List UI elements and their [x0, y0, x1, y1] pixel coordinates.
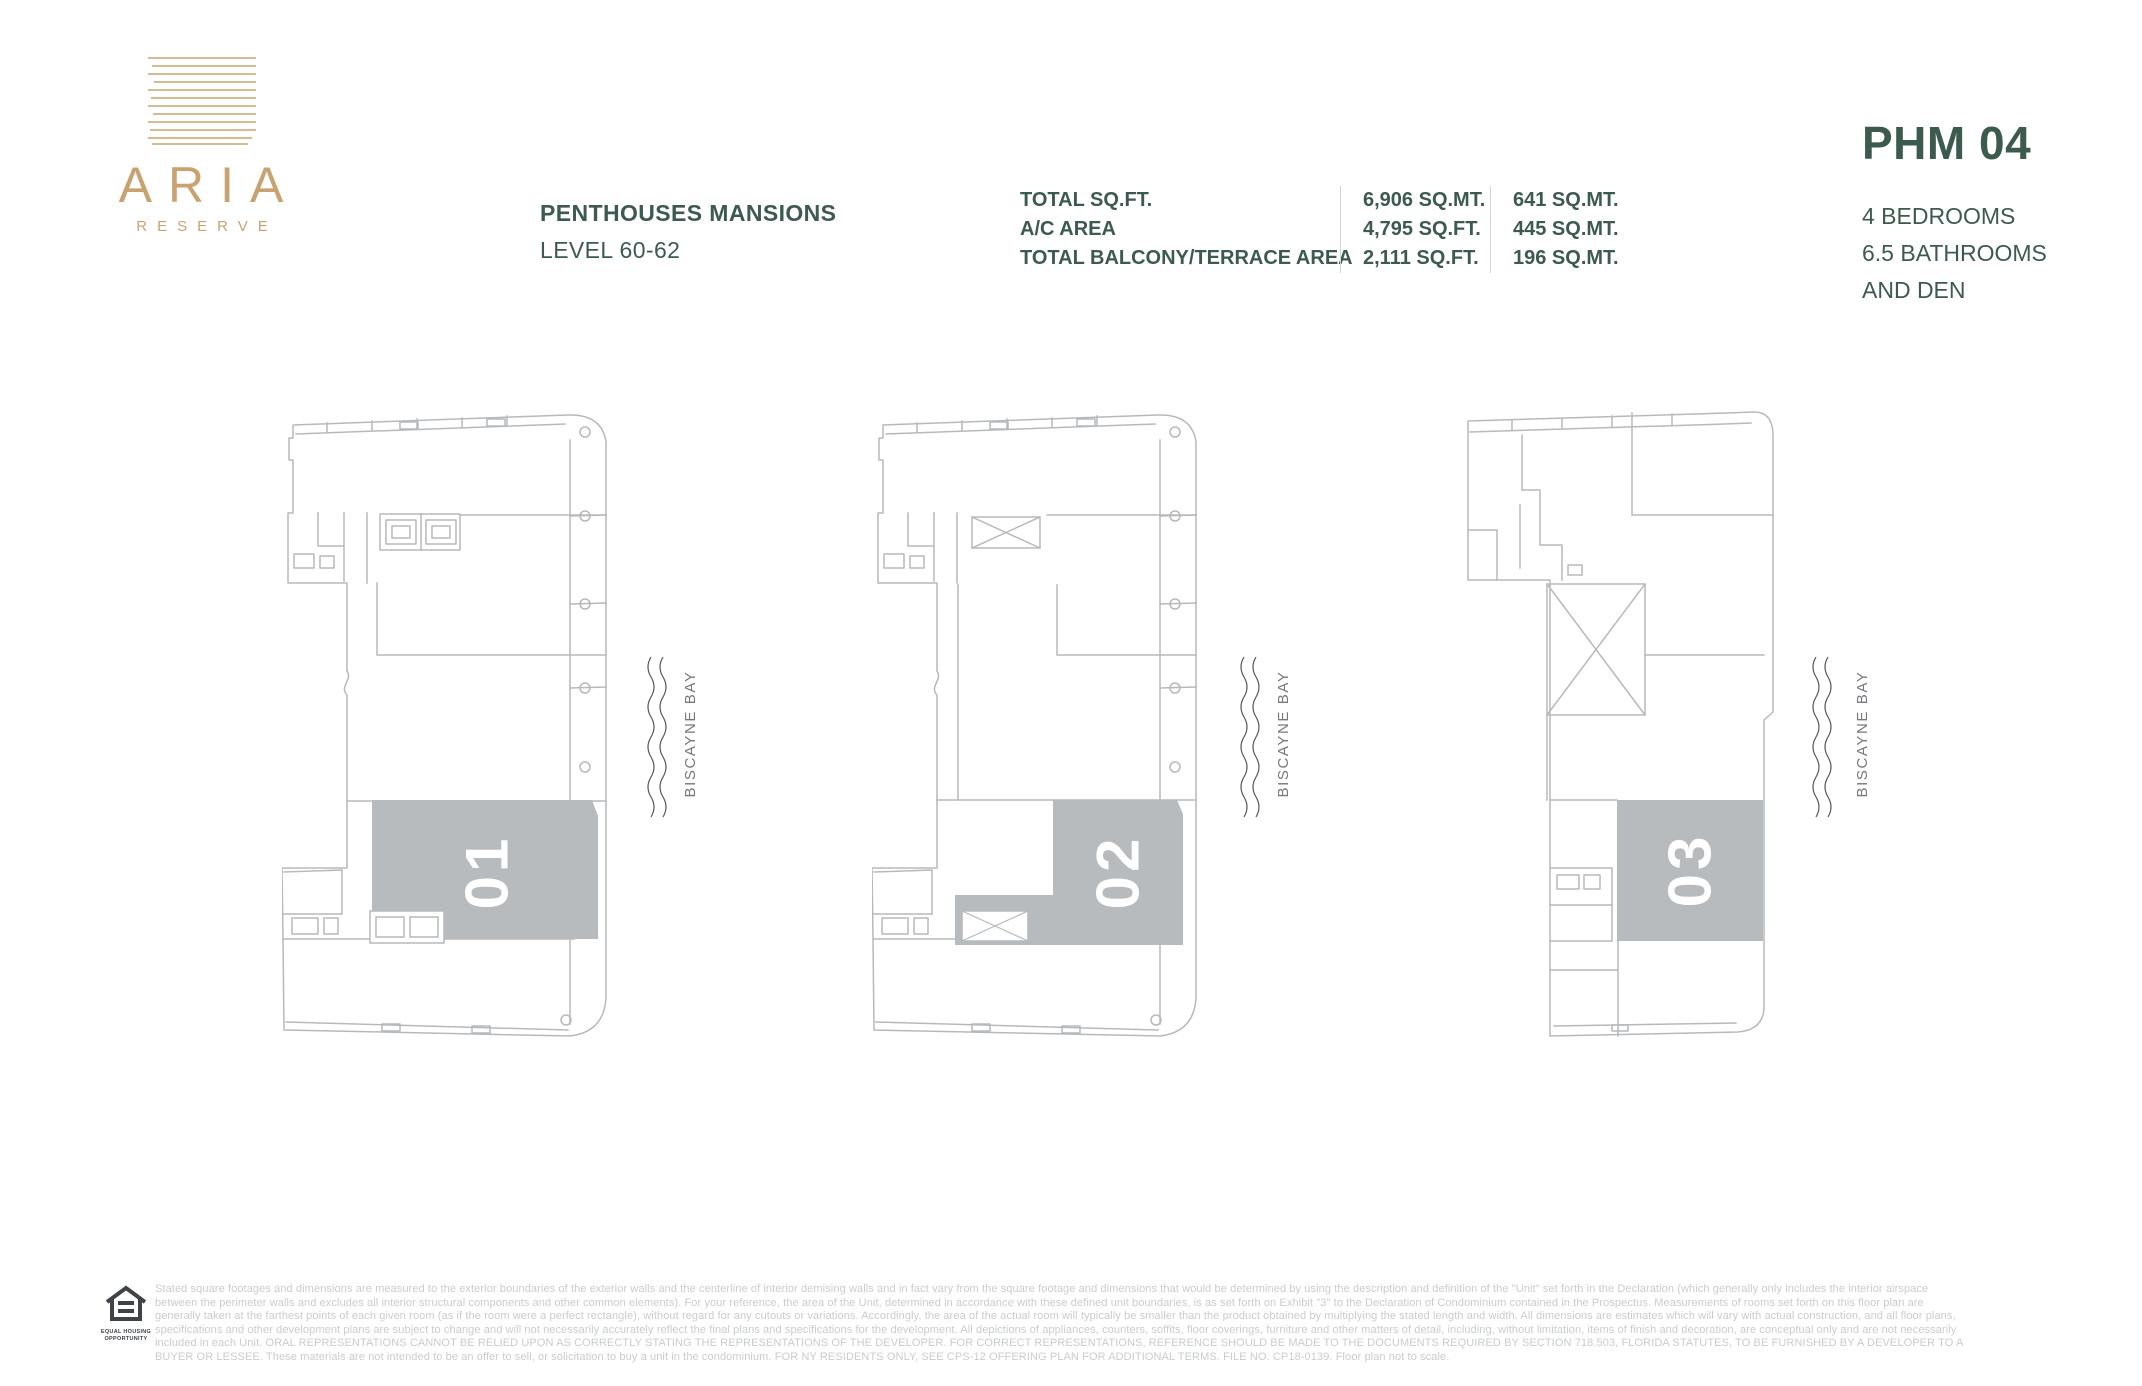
unit-info-block: PHM 04 4 BEDROOMS 6.5 BATHROOMS AND DEN [1862, 116, 2047, 309]
title-block: PENTHOUSES MANSIONS LEVEL 60-62 [540, 200, 836, 264]
logo-lines-icon [148, 56, 256, 146]
biscayne-bay-label: BISCAYNE BAY [1855, 649, 1871, 819]
equal-housing-label: EQUAL HOUSING OPPORTUNITY [95, 1329, 157, 1342]
stat-label: A/C AREA [1020, 215, 1340, 244]
stat-value-ft: 2,111 SQ.FT. [1340, 244, 1490, 273]
biscayne-bay-label: BISCAYNE BAY [1276, 649, 1292, 819]
stat-label: TOTAL SQ.FT. [1020, 186, 1340, 215]
water-waves-icon [1808, 655, 1838, 819]
floor-plan-01: 01 [282, 414, 612, 1069]
equal-housing-logo: EQUAL HOUSING OPPORTUNITY [95, 1284, 157, 1342]
floor-plan-02: 02 [872, 414, 1202, 1069]
stat-value-mt: 445 SQ.MT. [1490, 215, 1618, 244]
brand-name: ARIA [100, 160, 304, 210]
brochure-page: ARIA RESERVE PENTHOUSES MANSIONS LEVEL 6… [0, 0, 2142, 1386]
area-stats-table: TOTAL SQ.FT. 6,906 SQ.MT. 641 SQ.MT. A/C… [1020, 186, 1618, 273]
feature-bedrooms: 4 BEDROOMS [1862, 198, 2047, 235]
biscayne-bay-label: BISCAYNE BAY [683, 649, 699, 819]
legal-disclaimer: Stated square footages and dimensions ar… [155, 1283, 1963, 1365]
feature-bathrooms: 6.5 BATHROOMS [1862, 235, 2047, 272]
unit-features: 4 BEDROOMS 6.5 BATHROOMS AND DEN [1862, 198, 2047, 309]
stat-value-ft: 6,906 SQ.MT. [1340, 186, 1490, 215]
page-subtitle: LEVEL 60-62 [540, 237, 836, 264]
stat-value-ft: 4,795 SQ.FT. [1340, 215, 1490, 244]
unit-number-03: 03 [1657, 833, 1724, 908]
stat-value-mt: 641 SQ.MT. [1490, 186, 1618, 215]
unit-number-02: 02 [1085, 835, 1152, 910]
stat-label: TOTAL BALCONY/TERRACE AREA [1020, 244, 1340, 273]
stat-value-mt: 196 SQ.MT. [1490, 244, 1618, 273]
equal-housing-house-icon [103, 1284, 149, 1322]
unit-number-01: 01 [454, 835, 521, 910]
water-waves-icon [1236, 655, 1266, 819]
page-title: PENTHOUSES MANSIONS [540, 200, 836, 227]
aria-reserve-logo: ARIA RESERVE [100, 56, 304, 235]
brand-sub-name: RESERVE [100, 218, 304, 235]
water-waves-icon [643, 655, 673, 819]
unit-code: PHM 04 [1862, 116, 2047, 170]
feature-den: AND DEN [1862, 272, 2047, 309]
floor-plan-03: 03 [1462, 410, 1782, 1060]
